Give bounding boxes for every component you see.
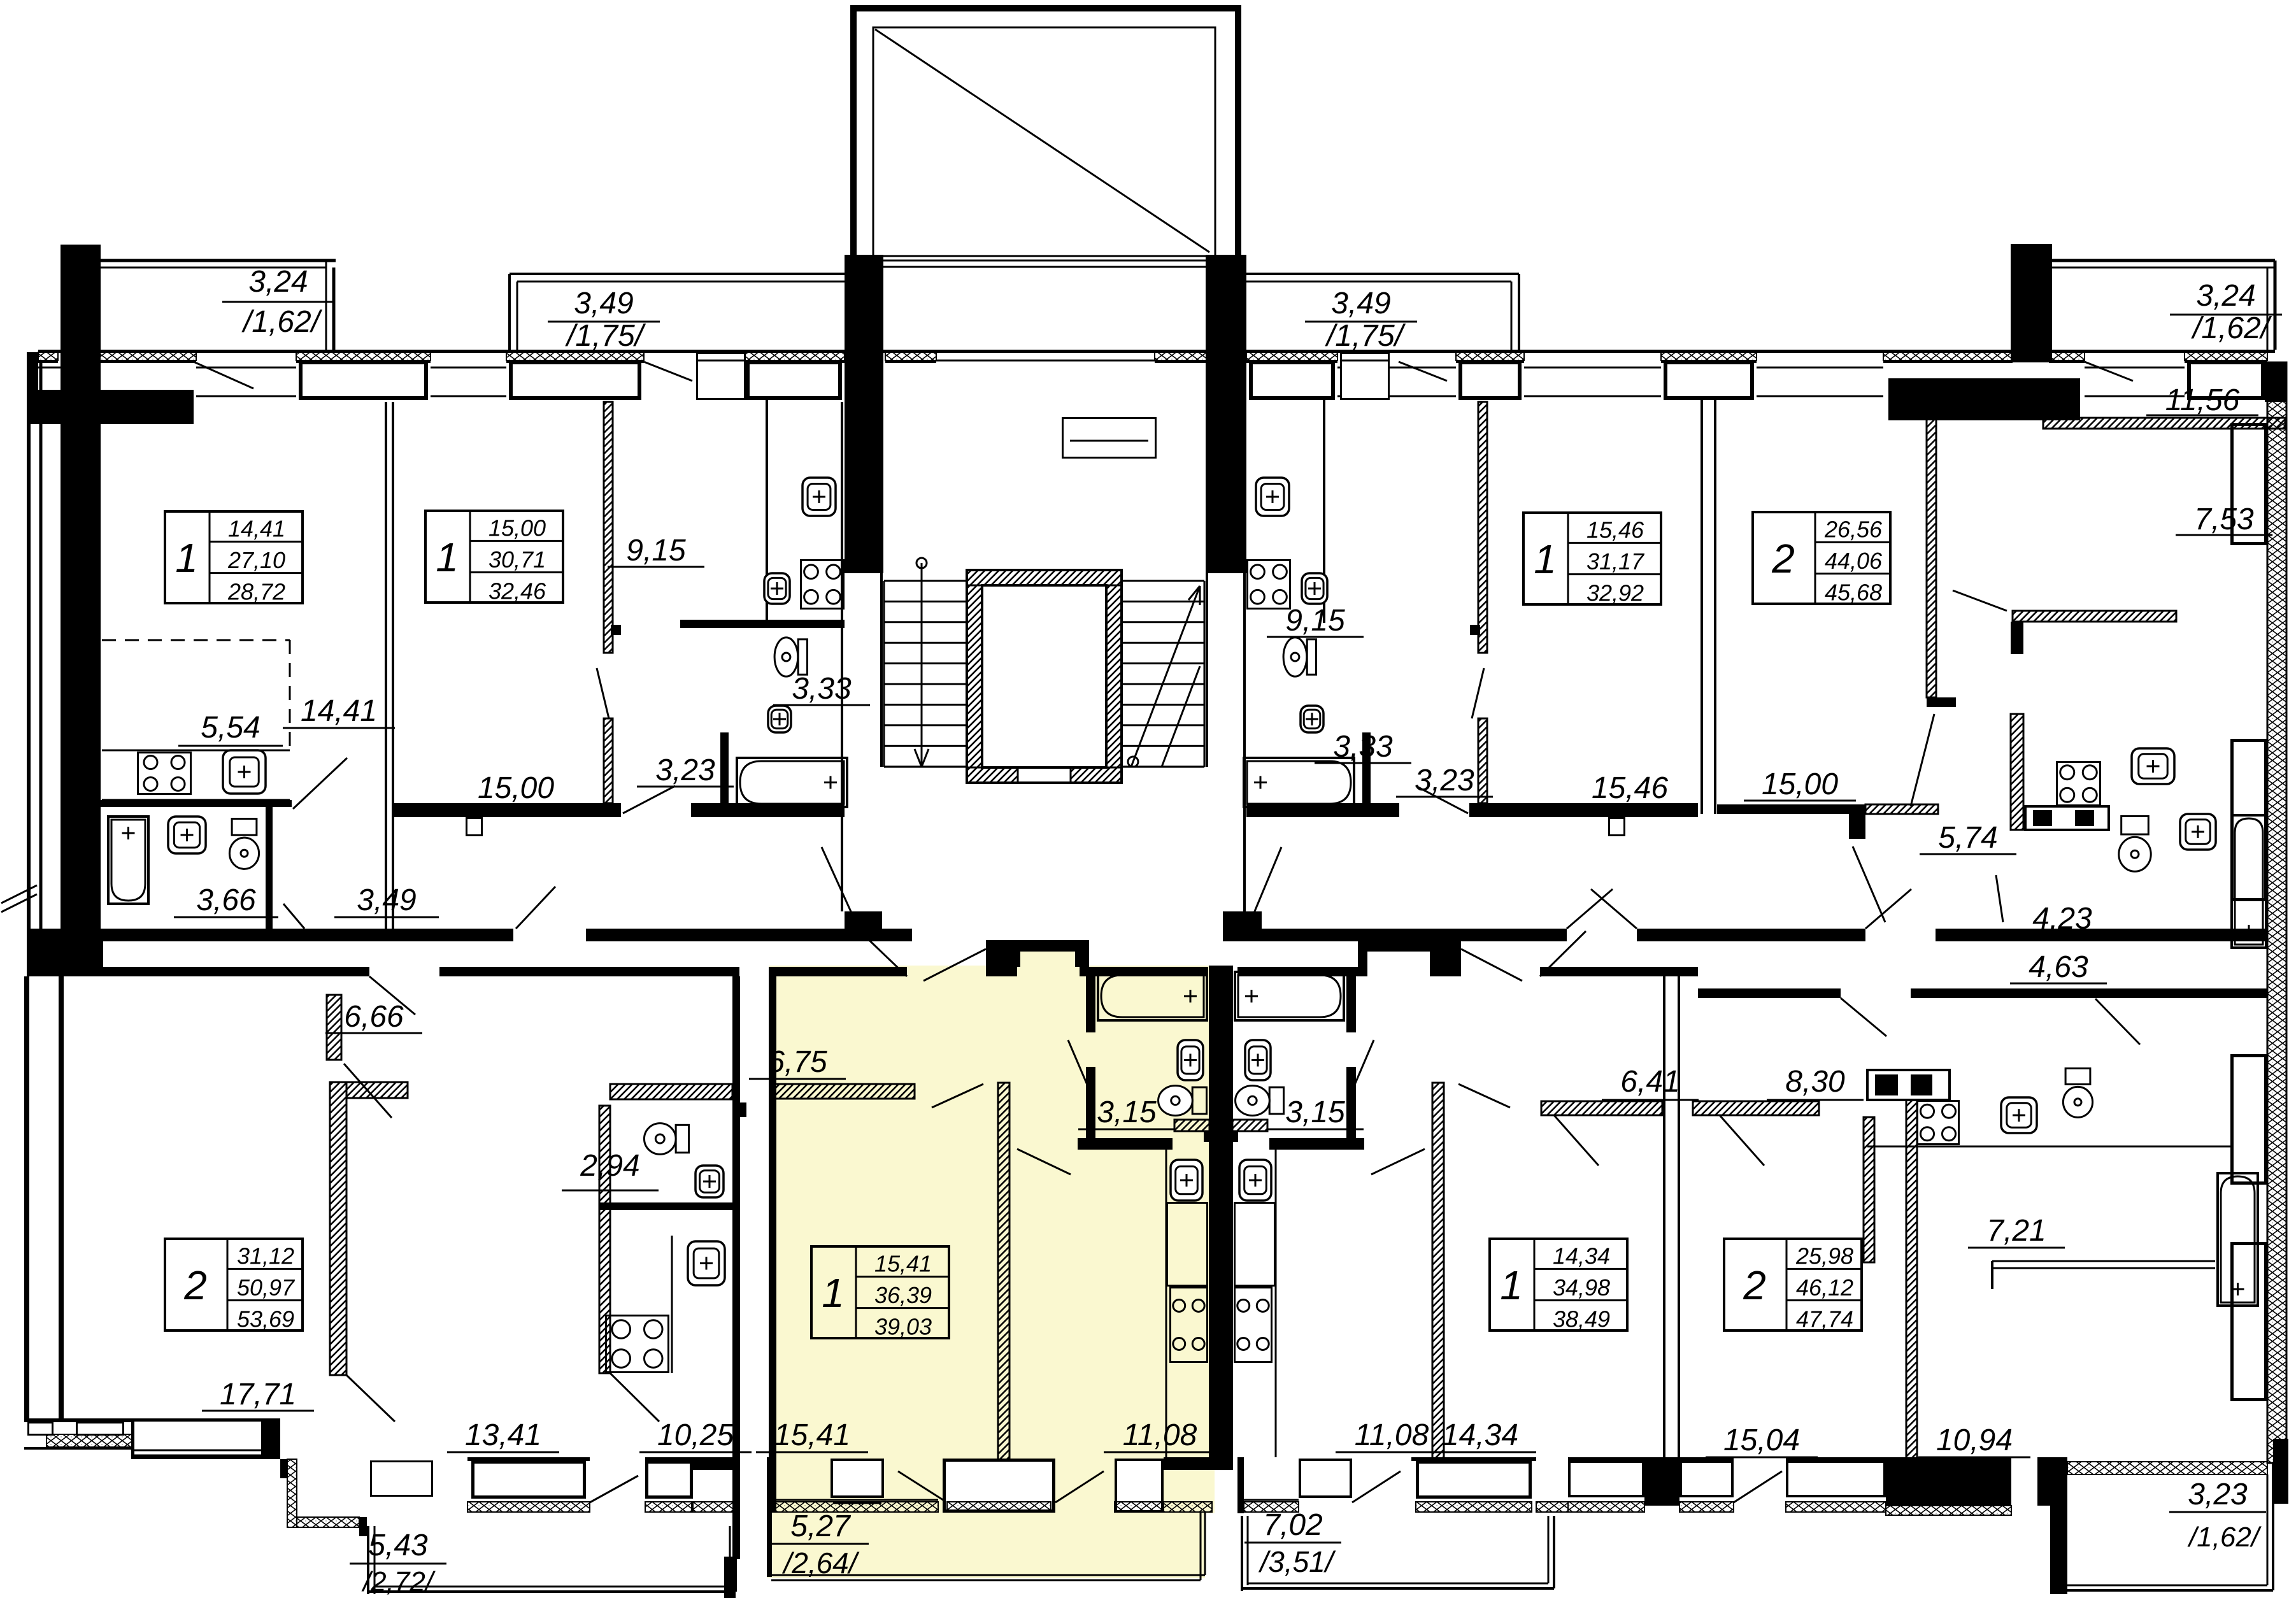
svg-text:46,12: 46,12 <box>1796 1274 1853 1301</box>
svg-text:32,46: 32,46 <box>488 578 546 604</box>
svg-text:3,23: 3,23 <box>1415 764 1474 797</box>
svg-text:9,15: 9,15 <box>1285 604 1345 638</box>
svg-text:2: 2 <box>1743 1262 1766 1308</box>
svg-text:15,00: 15,00 <box>488 515 546 541</box>
svg-text:5,54: 5,54 <box>201 711 260 745</box>
svg-text:3,49: 3,49 <box>574 287 633 320</box>
svg-text:/1,75/: /1,75/ <box>565 319 646 353</box>
svg-text:10,94: 10,94 <box>1936 1423 2013 1457</box>
svg-text:11,56: 11,56 <box>2165 383 2240 417</box>
svg-text:25,98: 25,98 <box>1795 1243 1853 1269</box>
svg-text:26,56: 26,56 <box>1824 517 1883 543</box>
svg-text:38,49: 38,49 <box>1553 1306 1610 1332</box>
svg-text:47,74: 47,74 <box>1796 1306 1853 1332</box>
svg-text:7,02: 7,02 <box>1263 1508 1322 1542</box>
svg-text:8,30: 8,30 <box>1785 1065 1845 1099</box>
svg-text:5,27: 5,27 <box>790 1509 852 1543</box>
svg-text:45,68: 45,68 <box>1825 579 1882 605</box>
svg-text:3,24: 3,24 <box>2196 279 2255 313</box>
svg-text:2,94: 2,94 <box>580 1149 639 1183</box>
svg-text:14,41: 14,41 <box>301 694 377 728</box>
svg-text:5,74: 5,74 <box>1938 821 1997 855</box>
svg-text:3,23: 3,23 <box>2188 1478 2248 1511</box>
svg-text:3,33: 3,33 <box>1333 730 1393 764</box>
svg-text:3,15: 3,15 <box>1285 1095 1345 1129</box>
svg-text:1: 1 <box>822 1270 845 1316</box>
svg-text:/3,51/: /3,51/ <box>1258 1545 1336 1578</box>
svg-text:15,00: 15,00 <box>1762 767 1838 801</box>
svg-text:30,71: 30,71 <box>488 546 546 573</box>
svg-text:3,49: 3,49 <box>1331 287 1390 320</box>
svg-text:17,71: 17,71 <box>220 1378 296 1411</box>
svg-text:28,72: 28,72 <box>227 578 285 604</box>
svg-text:13,41: 13,41 <box>465 1418 541 1452</box>
svg-text:3,15: 3,15 <box>1097 1095 1157 1129</box>
svg-text:/1,62/: /1,62/ <box>2191 311 2272 345</box>
svg-text:3,49: 3,49 <box>357 883 416 917</box>
svg-text:10,25: 10,25 <box>657 1418 734 1452</box>
svg-text:6,75: 6,75 <box>767 1045 827 1079</box>
svg-text:14,34: 14,34 <box>1442 1418 1518 1452</box>
svg-text:14,34: 14,34 <box>1553 1243 1610 1269</box>
svg-text:44,06: 44,06 <box>1825 548 1883 574</box>
svg-text:9,15: 9,15 <box>626 534 686 567</box>
svg-text:6,66: 6,66 <box>344 1000 404 1034</box>
svg-text:14,41: 14,41 <box>228 516 285 542</box>
svg-text:3,23: 3,23 <box>655 753 715 787</box>
svg-text:3,33: 3,33 <box>792 672 852 706</box>
svg-text:53,69: 53,69 <box>237 1306 294 1332</box>
svg-text:36,39: 36,39 <box>874 1282 932 1308</box>
svg-text:15,41: 15,41 <box>774 1418 850 1452</box>
svg-text:1: 1 <box>1534 536 1557 582</box>
svg-text:7,53: 7,53 <box>2194 503 2254 536</box>
svg-text:7,21: 7,21 <box>1986 1214 2046 1248</box>
svg-text:1: 1 <box>436 534 459 580</box>
svg-text:1: 1 <box>1500 1262 1523 1308</box>
svg-text:2: 2 <box>183 1262 207 1308</box>
svg-text:15,41: 15,41 <box>874 1251 932 1277</box>
svg-text:4,23: 4,23 <box>2032 902 2092 936</box>
svg-text:/1,62/: /1,62/ <box>241 305 323 339</box>
svg-text:6,41: 6,41 <box>1620 1065 1679 1099</box>
svg-text:15,46: 15,46 <box>1587 517 1644 543</box>
svg-text:15,04: 15,04 <box>1723 1423 1800 1457</box>
svg-text:/1,75/: /1,75/ <box>1325 319 1406 353</box>
svg-text:/2,72/: /2,72/ <box>361 1566 436 1597</box>
svg-text:2: 2 <box>1771 536 1795 581</box>
svg-text:31,12: 31,12 <box>237 1243 294 1269</box>
svg-text:15,00: 15,00 <box>478 771 554 805</box>
svg-text:1: 1 <box>175 535 198 581</box>
svg-text:11,08: 11,08 <box>1355 1418 1429 1452</box>
svg-text:11,08: 11,08 <box>1123 1418 1197 1452</box>
svg-text:31,17: 31,17 <box>1587 548 1645 574</box>
svg-text:15,46: 15,46 <box>1592 771 1668 805</box>
svg-text:5,43: 5,43 <box>368 1529 428 1562</box>
svg-text:/1,62/: /1,62/ <box>2187 1522 2262 1553</box>
svg-text:4,63: 4,63 <box>2029 950 2088 984</box>
svg-text:32,92: 32,92 <box>1587 580 1644 606</box>
svg-text:34,98: 34,98 <box>1553 1274 1610 1301</box>
svg-text:39,03: 39,03 <box>874 1313 932 1339</box>
svg-text:3,24: 3,24 <box>248 265 308 299</box>
svg-text:27,10: 27,10 <box>227 547 285 573</box>
svg-text:50,97: 50,97 <box>237 1274 296 1301</box>
svg-text:3,66: 3,66 <box>196 883 256 917</box>
